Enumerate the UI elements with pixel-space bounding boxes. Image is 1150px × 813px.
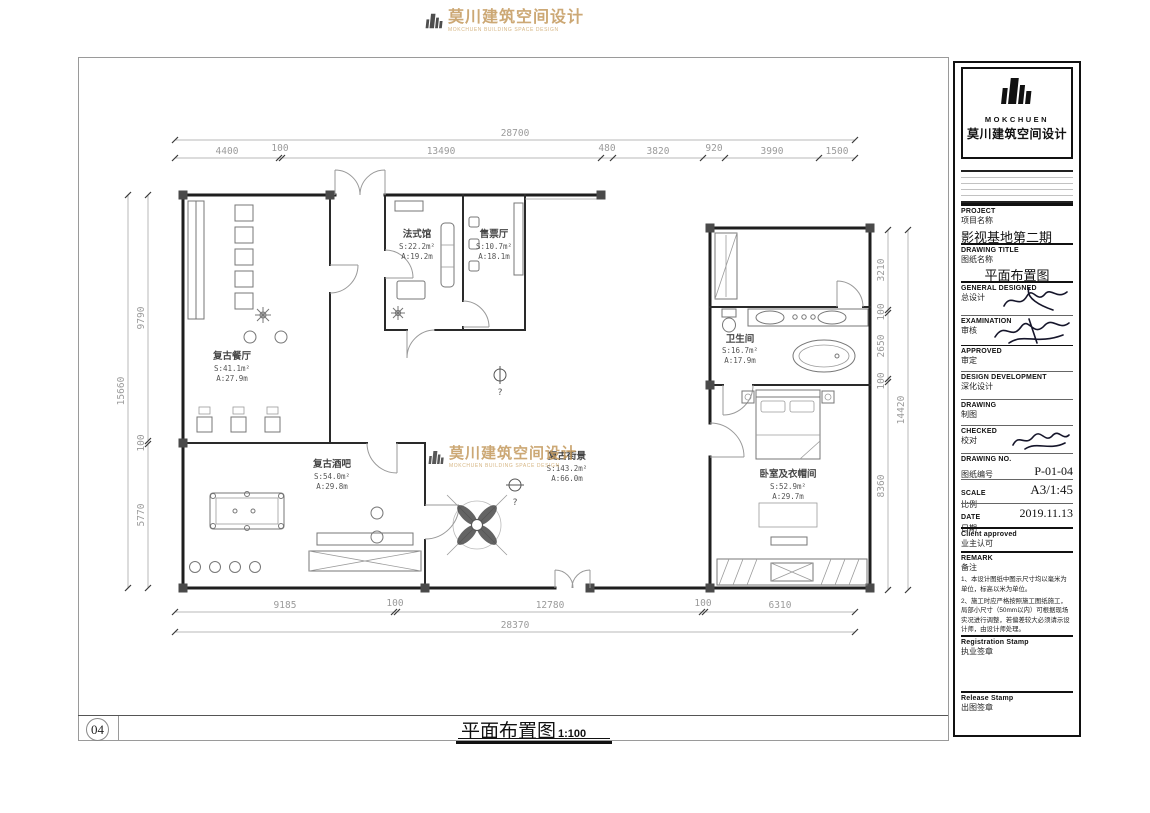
elevation-marker-1: ?: [494, 366, 506, 398]
signature-general-designed: [1001, 284, 1073, 314]
title-underline-thin: [458, 738, 610, 739]
field-label-cn: 图纸名称: [961, 255, 1073, 265]
plant-icon: [255, 307, 271, 323]
watermark-brand-en: MOKCHUEN BUILDING SPACE DESIGN: [449, 463, 577, 469]
room-label-retro-bar: 复古酒吧 S:54.0m² A:29.8m: [312, 458, 352, 491]
dim: 3990: [761, 146, 784, 157]
field-label-en: REMARK: [961, 555, 1073, 563]
remark-note-1: 1、本设计图纸中图示尺寸均以毫米为单位，标高以米为单位。: [961, 575, 1073, 594]
svg-text:A:66.0m: A:66.0m: [551, 474, 583, 483]
field-drawing: DRAWING 制图: [961, 399, 1073, 425]
street-ornament: [447, 495, 507, 555]
room-label-ticket-office: 售票厅 S:10.7m² A:18.1m: [476, 228, 512, 261]
field-label-en: APPROVED: [961, 348, 1073, 356]
field-project: PROJECT 项目名称 影视基地第二期: [961, 203, 1073, 243]
field-release-stamp: Release Stamp 出图签章: [961, 691, 1073, 731]
brand-building-icon: [428, 446, 445, 469]
company-logo: MOKCHUEN 莫川建筑空间设计: [961, 67, 1073, 159]
field-approved: APPROVED 审定: [961, 345, 1073, 371]
title-block: MOKCHUEN 莫川建筑空间设计 PROJECT 项目名称 影视基地第二期 D…: [948, 57, 1085, 741]
dim: 100: [876, 372, 887, 389]
page-number: 04: [86, 718, 109, 741]
ruled-lines: [961, 165, 1073, 203]
watermark-brand-cn: 莫川建筑空间设计: [449, 446, 577, 463]
field-label-en: SCALE: [961, 490, 986, 498]
outer-walls: [183, 195, 870, 588]
dim: 12780: [536, 600, 565, 611]
brand-name-en: MOKCHUEN: [965, 115, 1069, 124]
field-registration-stamp: Registration Stamp 执业签章: [961, 635, 1073, 691]
remark-note-2: 2、施工时应严格按照施工图纸施工，局部小尺寸（50mm以内）可根据现场实况进行调…: [961, 597, 1073, 635]
svg-text:S:10.7m²: S:10.7m²: [476, 242, 512, 251]
plant-icon: [391, 306, 405, 320]
dim-left-total: 15660: [116, 376, 127, 405]
signature-examination: [993, 317, 1073, 347]
svg-text:A:29.8m: A:29.8m: [316, 482, 348, 491]
field-label-cn: 备注: [961, 563, 1073, 573]
dim: 480: [598, 143, 615, 154]
dim: 3210: [876, 258, 887, 281]
svg-text:S:22.2m²: S:22.2m²: [399, 242, 435, 251]
field-general-designed: GENERAL DESIGNED 总设计: [961, 281, 1073, 315]
signature-checked: [1011, 427, 1073, 453]
top-watermark: 莫川建筑空间设计 MOKCHUEN BUILDING SPACE DESIGN: [425, 8, 584, 34]
room-label-bedroom: 卧室及衣帽间 S:52.9m² A:29.7m: [759, 468, 816, 501]
room-label-bathroom: 卫生间 S:16.7m² A:17.9m: [722, 333, 758, 365]
field-label-cn: 项目名称: [961, 216, 1073, 226]
footer-strip: 04 平面布置图 1:100: [78, 715, 948, 741]
field-label-cn: 审定: [961, 356, 1073, 366]
brand-building-icon: [425, 8, 444, 34]
dim: 100: [271, 143, 288, 154]
field-examination: EXAMINATION 审核: [961, 315, 1073, 345]
plan-watermark: 莫川建筑空间设计 MOKCHUEN BUILDING SPACE DESIGN: [428, 446, 577, 469]
svg-text:A:19.2m: A:19.2m: [401, 252, 433, 261]
field-date: DATE 2019.11.13 日期: [961, 503, 1073, 527]
date-value: 2019.11.13: [1019, 506, 1073, 521]
scale-value: A3/1:45: [1030, 482, 1073, 498]
svg-text:复古酒吧: 复古酒吧: [312, 458, 352, 470]
dim: 5770: [136, 503, 147, 526]
dim-bottom-total: 28370: [501, 620, 530, 631]
field-label-en: DRAWING: [961, 402, 1073, 410]
field-label-cn: 业主认可: [961, 539, 1073, 549]
dim: 13490: [427, 146, 456, 157]
columns: [179, 191, 875, 593]
field-label-cn: 深化设计: [961, 382, 1073, 392]
dim: 9790: [136, 306, 147, 329]
dim: 100: [694, 598, 711, 609]
dim: 100: [136, 434, 147, 451]
svg-text:A:18.1m: A:18.1m: [478, 252, 510, 261]
dim: 8360: [876, 474, 887, 497]
watermark-brand-cn: 莫川建筑空间设计: [448, 9, 584, 27]
field-scale: SCALE A3/1:45 比例: [961, 479, 1073, 503]
bar-furniture: [190, 492, 422, 573]
brand-name-cn: 莫川建筑空间设计: [965, 125, 1069, 142]
svg-text:卫生间: 卫生间: [726, 333, 755, 345]
field-label-cn: 执业签章: [961, 647, 1073, 657]
footer-divider: [118, 716, 119, 741]
svg-text:S:41.1m²: S:41.1m²: [214, 364, 250, 373]
dim: 100: [386, 598, 403, 609]
field-remark: REMARK 备注 1、本设计图纸中图示尺寸均以毫米为单位，标高以米为单位。 2…: [961, 551, 1073, 635]
bath-bedroom-furniture: [715, 233, 868, 585]
watermark-brand-en: MOKCHUEN BUILDING SPACE DESIGN: [448, 27, 584, 33]
dim: 2650: [876, 334, 887, 357]
marker-label: ?: [497, 388, 502, 398]
field-design-development: DESIGN DEVELOPMENT 深化设计: [961, 371, 1073, 399]
restaurant-furniture: [188, 201, 287, 432]
dim: 3820: [647, 146, 670, 157]
dim: 920: [705, 143, 722, 154]
svg-text:复古餐厅: 复古餐厅: [212, 350, 252, 362]
dim: 6310: [769, 600, 792, 611]
floor-plan: 28700 4400 100 13490 480 3820 920 3990 1…: [95, 85, 925, 655]
drawing-no-value: P-01-04: [1034, 464, 1073, 479]
drawing-sheet: 莫川建筑空间设计 MOKCHUEN BUILDING SPACE DESIGN: [0, 0, 1150, 813]
elevation-marker-2: ?: [506, 479, 524, 508]
svg-text:S:54.0m²: S:54.0m²: [314, 472, 350, 481]
brand-building-icon: [1000, 75, 1034, 107]
field-label-cn: 制图: [961, 410, 1073, 420]
svg-text:S:16.7m²: S:16.7m²: [722, 346, 758, 355]
dim: 1500: [826, 146, 849, 157]
svg-text:A:29.7m: A:29.7m: [772, 492, 804, 501]
interior-walls: [183, 195, 870, 588]
field-drawing-no: DRAWING NO. 图纸编号 P-01-04: [961, 453, 1073, 479]
field-client-approved: Client approved 业主认可: [961, 527, 1073, 551]
field-drawing-title: DRAWING TITLE 图纸名称 平面布置图: [961, 243, 1073, 281]
svg-text:A:17.9m: A:17.9m: [724, 356, 756, 365]
dim: 4400: [216, 146, 239, 157]
room-label-french-hall: 法式馆 S:22.2m² A:19.2m: [399, 228, 435, 261]
svg-text:S:52.9m²: S:52.9m²: [770, 482, 806, 491]
field-label-en: DATE: [961, 514, 980, 522]
field-checked: CHECKED 校对: [961, 425, 1073, 453]
dim-right-total: 14420: [896, 395, 907, 424]
marker-label: ?: [512, 498, 517, 508]
dim: 100: [876, 303, 887, 320]
field-label-cn: 出图签章: [961, 703, 1073, 713]
svg-text:A:27.9m: A:27.9m: [216, 374, 248, 383]
svg-text:售票厅: 售票厅: [480, 228, 509, 240]
dim-top-total: 28700: [501, 128, 530, 139]
svg-text:卧室及衣帽间: 卧室及衣帽间: [759, 468, 816, 480]
room-label-retro-restaurant: 复古餐厅 S:41.1m² A:27.9m: [212, 350, 252, 383]
field-label-en: DRAWING NO.: [961, 456, 1073, 464]
svg-text:法式馆: 法式馆: [403, 228, 432, 240]
title-underline-thick: [456, 741, 612, 744]
dim: 9185: [274, 600, 297, 611]
